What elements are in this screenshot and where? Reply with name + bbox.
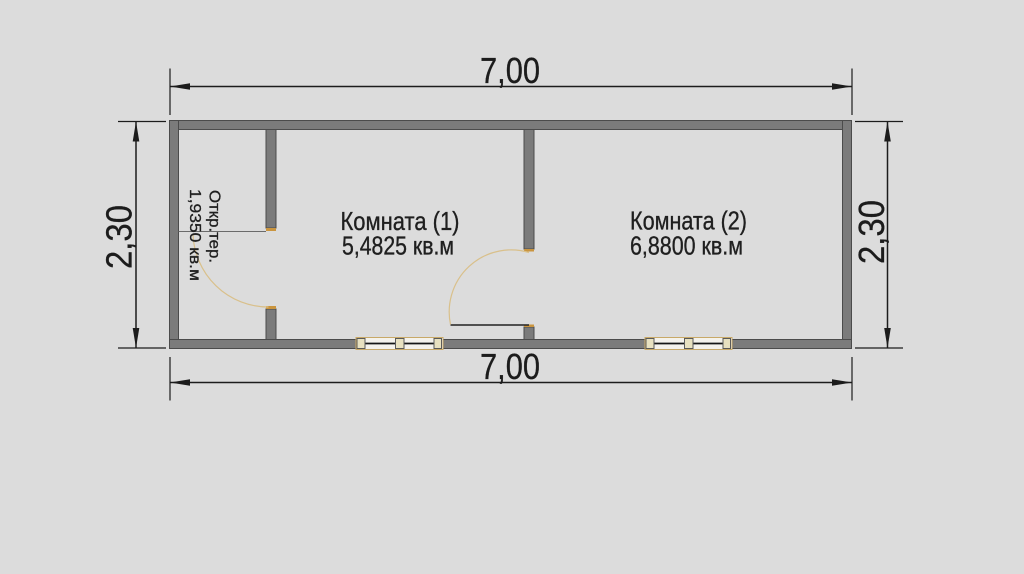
- svg-text:2,30: 2,30: [851, 200, 892, 264]
- svg-text:6,8800 кв.м: 6,8800 кв.м: [630, 231, 743, 261]
- svg-text:1,9350 кв.м: 1,9350 кв.м: [186, 189, 203, 281]
- svg-text:Откр.тер.: Откр.тер.: [206, 190, 223, 263]
- svg-text:5,4825 кв.м: 5,4825 кв.м: [342, 231, 454, 261]
- svg-text:2,30: 2,30: [99, 205, 140, 269]
- svg-text:7,00: 7,00: [480, 50, 540, 91]
- svg-text:7,00: 7,00: [480, 346, 540, 387]
